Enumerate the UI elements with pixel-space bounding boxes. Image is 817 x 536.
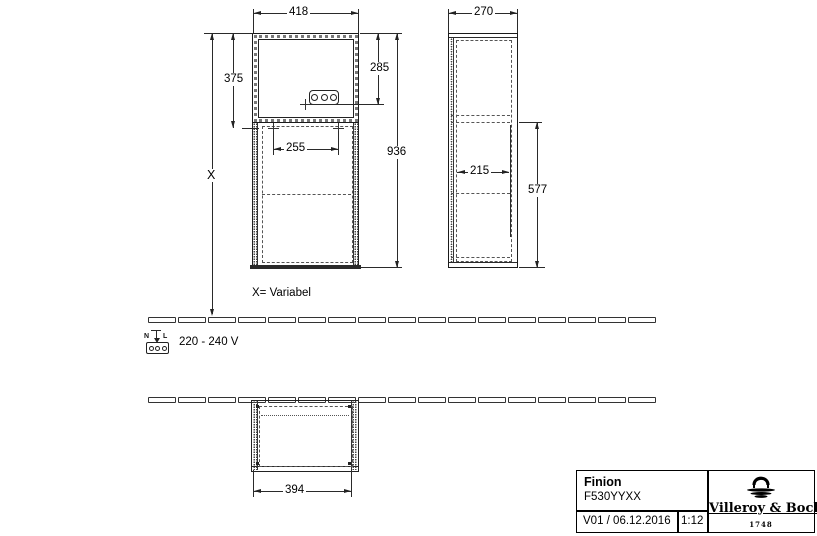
- title-block-divider: [576, 510, 707, 512]
- corner-marker: [348, 405, 351, 408]
- side-bottom-dashed-line: [451, 257, 510, 258]
- arrowhead-up: [210, 33, 214, 40]
- title-block-divider: [677, 510, 679, 533]
- outlet-pin-icon: [155, 346, 160, 351]
- corner-marker: [348, 462, 351, 465]
- side-bottom-board-line: [449, 262, 517, 263]
- socket-pin-icon: [330, 94, 337, 101]
- side-section-dashed-line: [451, 122, 510, 123]
- corner-marker: [256, 405, 259, 408]
- neutral-terminal-label: N: [144, 333, 149, 341]
- arrowhead-left: [274, 147, 281, 151]
- power-socket-icon: [309, 90, 339, 105]
- side-section-dashed-line: [451, 115, 510, 116]
- article-number: F530YYXX: [584, 491, 641, 503]
- extension-line: [311, 104, 384, 105]
- front-right-wall: [353, 123, 359, 265]
- technical-drawing-sheet: 418 375 285 936 255 X X= Variabel: [0, 0, 817, 536]
- plan-left-wall: [253, 401, 258, 470]
- extension-line: [519, 267, 545, 268]
- dim-lower-height: 577: [526, 184, 549, 197]
- arrowhead-right: [351, 11, 358, 15]
- variable-height-note: X= Variabel: [252, 287, 311, 299]
- socket-pin-icon: [311, 94, 318, 101]
- front-plinth: [250, 265, 361, 269]
- outlet-pin-icon: [162, 346, 167, 351]
- plan-mirror-zigzag-line: [261, 415, 349, 416]
- extension-line: [253, 470, 254, 497]
- arrowhead-up: [535, 122, 539, 129]
- extension-line: [338, 131, 339, 155]
- power-outlet-icon: [146, 342, 169, 354]
- drawing-scale: 1:12: [681, 515, 703, 527]
- dim-variable-height: X: [205, 169, 217, 182]
- wall-hatch-line: [148, 397, 622, 403]
- arrowhead-right: [502, 170, 509, 174]
- arrowhead-right: [510, 11, 517, 15]
- product-name: Finion: [584, 475, 622, 489]
- extension-line: [510, 125, 511, 237]
- arrowhead-down: [231, 121, 235, 128]
- arrowhead-up: [231, 33, 235, 40]
- outlet-pin-icon: [149, 346, 154, 351]
- side-top-board-line: [449, 37, 517, 38]
- line-terminal-label: L: [163, 333, 167, 341]
- arrowhead-up: [376, 33, 380, 40]
- dim-plan-width: 394: [283, 484, 306, 497]
- dim-upper-height: 375: [222, 73, 245, 86]
- villeroy-boch-fountain-icon: [740, 472, 782, 500]
- extension-line: [351, 470, 352, 497]
- dim-socket-spacing: 255: [284, 142, 307, 155]
- arrowhead-left: [458, 170, 465, 174]
- corner-marker: [256, 462, 259, 465]
- arrowhead-up: [395, 33, 399, 40]
- dim-side-inner-depth: 215: [468, 165, 491, 178]
- arrowhead-right: [344, 489, 351, 493]
- dim-socket-height: 285: [368, 62, 391, 75]
- dim-cabinet-height: 936: [385, 146, 408, 159]
- floor-hatch-line: [148, 317, 622, 323]
- brand-founded-year: 1748: [709, 520, 813, 529]
- extension-line: [242, 128, 259, 129]
- arrowhead-right: [331, 147, 338, 151]
- extension-line: [273, 131, 274, 155]
- extension-line: [517, 9, 518, 33]
- side-shelf-dashed-line: [451, 193, 510, 194]
- reference-cross-marker: [300, 99, 311, 110]
- socket-pin-icon: [321, 94, 328, 101]
- arrowhead-left: [254, 489, 261, 493]
- dim-side-depth: 270: [472, 6, 495, 19]
- front-left-wall: [252, 123, 258, 265]
- extension-line: [519, 122, 542, 123]
- version-date: V01 / 06.12.2016: [583, 515, 671, 527]
- side-back-wall: [450, 38, 454, 262]
- arrowhead-down: [535, 261, 539, 268]
- arrowhead-down: [210, 309, 214, 316]
- arrowhead-left: [254, 11, 261, 15]
- arrowhead-left: [449, 11, 456, 15]
- arrowhead-down: [395, 261, 399, 268]
- extension-line: [358, 9, 359, 33]
- voltage-label: 220 - 240 V: [179, 336, 238, 348]
- side-inner-dashed-outline: [456, 40, 512, 262]
- dim-front-width: 418: [287, 6, 310, 19]
- front-shelf-dashed-line: [262, 194, 351, 195]
- brand-name: Villeroy & Boch: [709, 501, 813, 516]
